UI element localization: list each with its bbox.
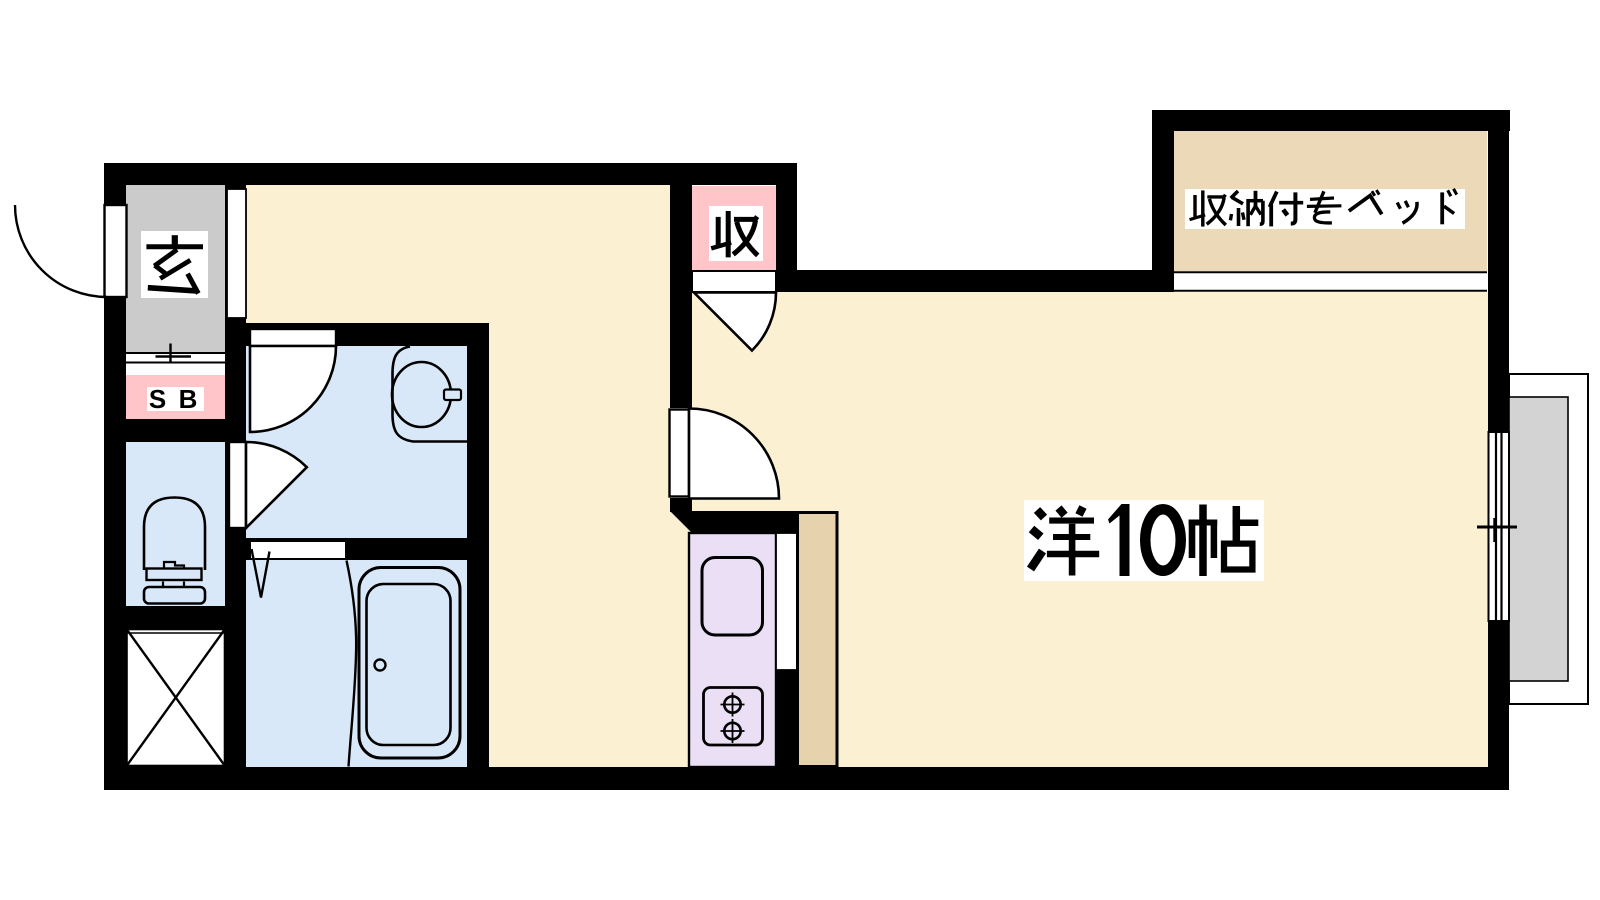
svg-text:B: B	[179, 384, 198, 414]
svg-text:S: S	[149, 384, 166, 414]
